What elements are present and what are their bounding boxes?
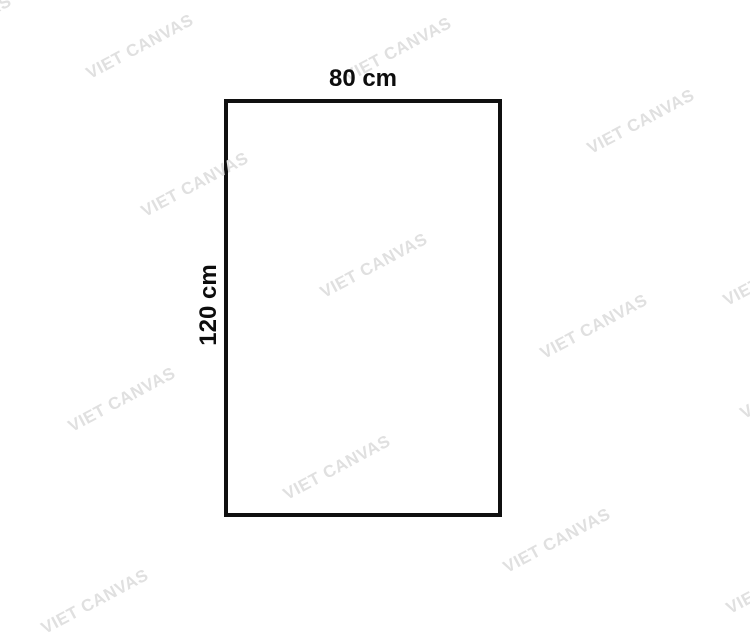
watermark-text: VIET CANVAS <box>584 85 698 158</box>
watermark-text: VIET CANVAS <box>500 504 614 577</box>
canvas-size-diagram: VIET CANVASVIET CANVASVIET CANVASVIET CA… <box>0 0 750 600</box>
watermark-text: VIET CANVAS <box>737 350 750 423</box>
width-dimension-label: 80 cm <box>224 64 502 94</box>
watermark-text: VIET CANVAS <box>0 0 15 65</box>
canvas-outline-rect <box>224 99 502 517</box>
watermark-text: VIET CANVAS <box>720 237 750 310</box>
watermark-text: VIET CANVAS <box>723 545 750 618</box>
watermark-text: VIET CANVAS <box>537 290 651 363</box>
watermark-text: VIET CANVAS <box>38 565 152 638</box>
watermark-text: VIET CANVAS <box>83 10 197 83</box>
height-dimension-label: 120 cm <box>195 264 223 345</box>
watermark-text: VIET CANVAS <box>65 363 179 436</box>
